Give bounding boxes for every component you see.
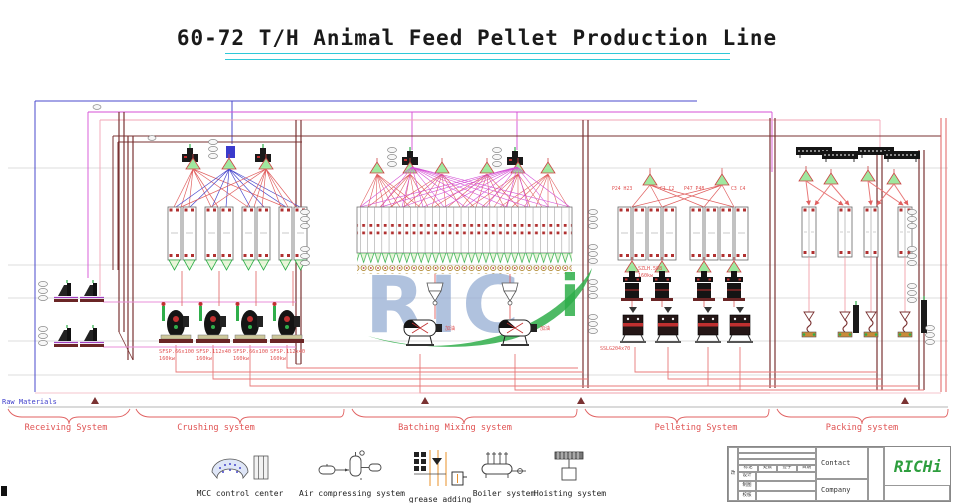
title-block-row-design: 设计 [738,472,756,481]
pelleting-section: P24 H23 C1 C2 P47 P48 C3 C4 SZLH.508 160… [589,168,754,352]
pelleting-bin-tag: P24 H23 [612,186,632,192]
watermark-i: i [560,262,580,330]
legend-label: Air compressing system [292,489,412,498]
mcc-control-center-icon [208,450,272,484]
section-label-pelleting: Pelleting System [655,423,738,433]
pellet-mill-label-model: SZLH.508 [638,266,662,272]
receiving-section [39,280,105,347]
section-label-receiving: Receiving System [25,423,108,433]
crusher-label-model: SFSP.66x100 [159,349,194,355]
richi-watermark: RIC i [365,261,592,351]
crusher-label-power: 160kw [270,356,287,362]
crusher-label-power: 160kw [159,356,176,362]
air-compressor-icon [317,450,387,484]
legend-label: MCC control center [190,489,290,498]
title-block-contact-label: Contact [816,447,868,479]
crusher-label-power: 160kw [233,356,250,362]
equipment-legend: MCC control center Air compressing syste… [0,450,730,502]
title-block-header-count: 处数 [758,465,777,472]
crusher-label-power: 160kw [196,356,213,362]
feed-mill-flow-drawing: { "title": "60-72 T/H Animal Feed Pellet… [0,0,954,503]
section-label-packing: Packing system [826,423,898,433]
packing-section [796,147,935,345]
mixer-tag: 加油 [540,325,550,332]
legend-label: Hoisting system [525,489,615,498]
crusher-label-model: SFSP.112x40 [270,349,305,355]
title-block-row-checked: 校核 [738,491,756,501]
hoist-icon [547,450,593,484]
section-label-batching: Batching Mixing system [398,423,512,433]
title-block-header-mark: 标记 [738,465,758,472]
raw-materials-label: Raw Materials [2,398,57,406]
section-braces [8,409,948,424]
title-block-company-label: Company [816,479,868,501]
drawing-title-block: 改 标记 处数 签字 日期 设计 制图 校核 Contact Company R… [727,446,951,502]
crumbler-label: SSLG204x70 [600,346,630,352]
crusher-label-model: SFSP.66x100 [233,349,268,355]
title-block-header-signature: 签字 [777,465,797,472]
crushing-section: SFSP.66x100 160kw SFSP.112x40 160kw SFSP… [159,139,310,362]
legend-mcc-control-center: MCC control center [190,450,290,498]
boiler-icon [476,450,532,484]
pellet-mill-label-power: 160kw [638,273,654,279]
pelleting-bin-tag: C1 C2 [660,186,675,192]
richi-logo: RICHi [884,447,951,485]
corner-mark [1,486,7,496]
legend-hoisting: Hoisting system [525,450,615,498]
title-block-header-date: 日期 [797,465,816,472]
batching-section [357,147,572,274]
process-flow-diagram: SFSP.66x100 160kw SFSP.112x40 160kw SFSP… [0,0,954,503]
crusher-label-model: SFSP.112x40 [196,349,231,355]
legend-air-compressing: Air compressing system [292,450,412,498]
mixer-tag: 加油 [445,325,455,332]
title-block-revision: 改 [728,447,738,501]
pelleting-bin-tag: P47 P48 [684,186,704,192]
section-label-crushing: Crushing system [177,423,255,433]
title-block-row-drawn: 制图 [738,481,756,491]
section-labels: Raw Materials Receiving System Crushing … [2,398,948,433]
pelleting-bin-tag: C3 C4 [731,186,746,192]
